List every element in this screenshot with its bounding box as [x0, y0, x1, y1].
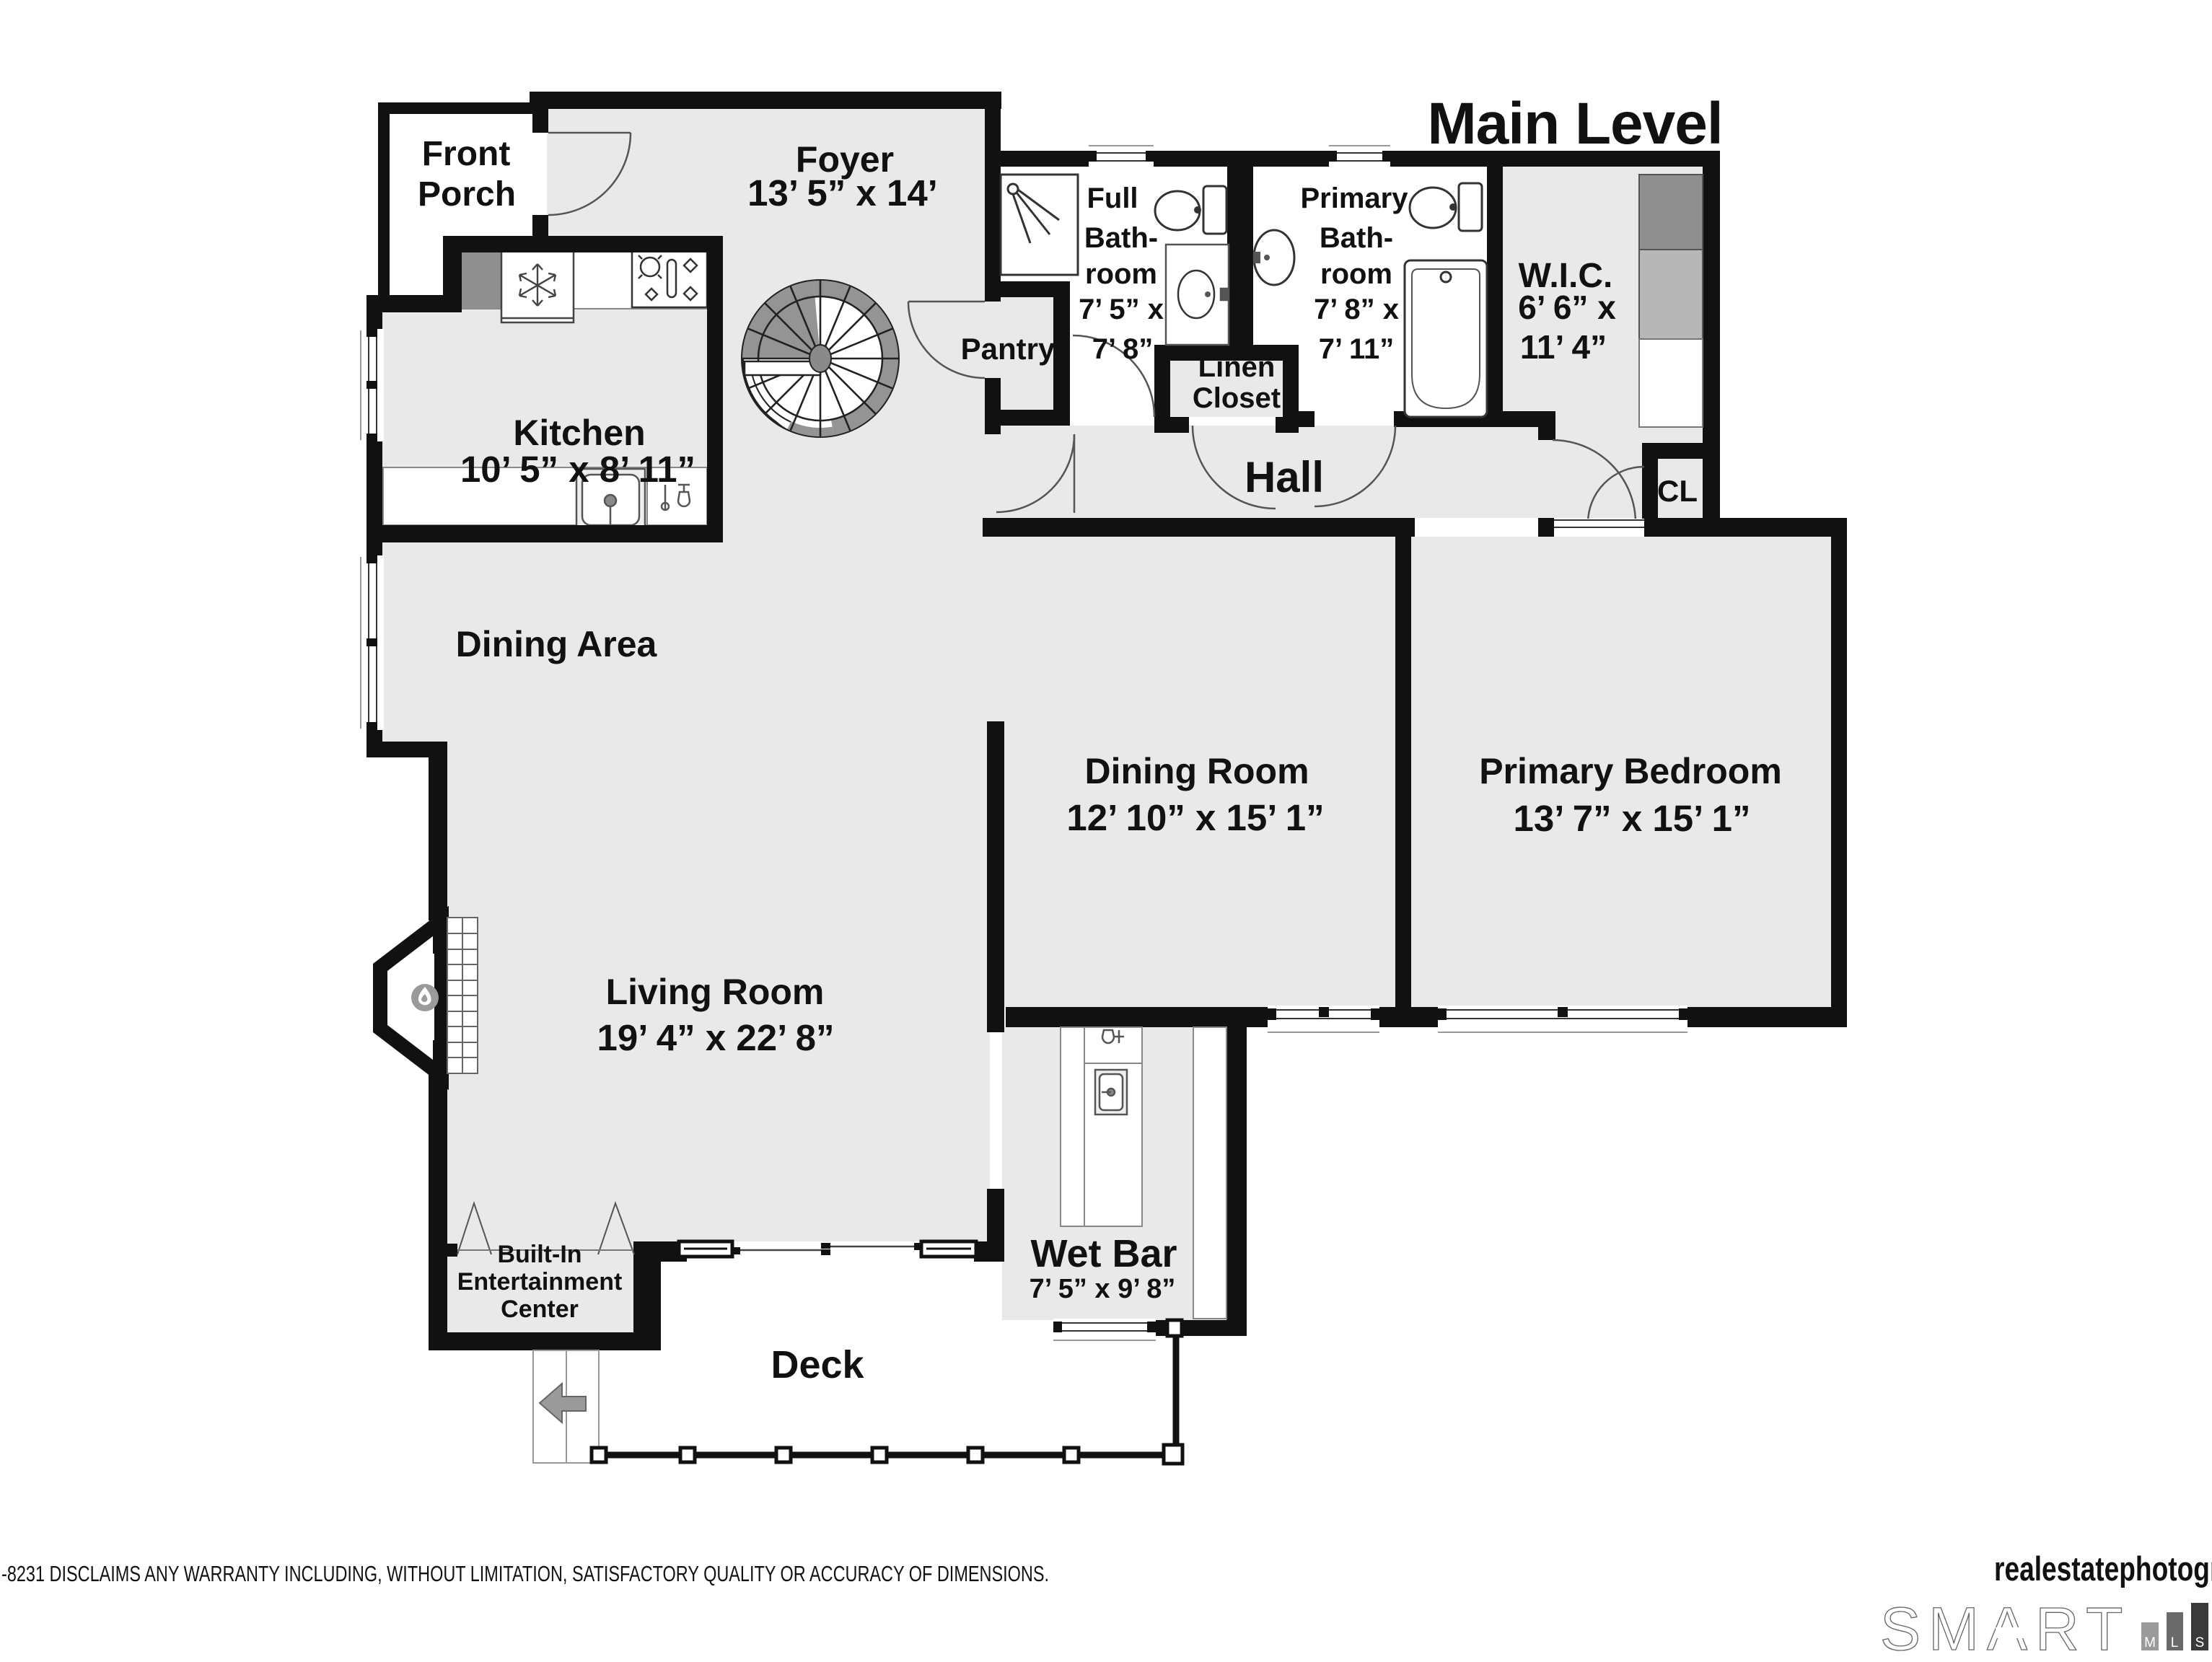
svg-text:M: M: [2144, 1635, 2156, 1650]
svg-text:S: S: [2195, 1635, 2205, 1650]
svg-text:Porch: Porch: [418, 175, 516, 214]
svg-text:Living Room: Living Room: [606, 972, 825, 1012]
svg-text:room: room: [1320, 258, 1392, 290]
svg-text:realestatephotography: realestatephotography: [1994, 1549, 2212, 1588]
svg-text:13’ 7” x 15’ 1”: 13’ 7” x 15’ 1”: [1514, 798, 1751, 839]
svg-text:Closet: Closet: [1193, 382, 1281, 414]
svg-text:Bath-: Bath-: [1320, 222, 1393, 254]
svg-text:Kitchen: Kitchen: [513, 413, 645, 453]
svg-text:room: room: [1085, 258, 1157, 290]
svg-text:12’ 10” x 15’ 1”: 12’ 10” x 15’ 1”: [1066, 797, 1324, 838]
svg-text:Hall: Hall: [1245, 453, 1324, 501]
svg-text:11’ 4”: 11’ 4”: [1520, 328, 1607, 366]
svg-text:Linen: Linen: [1198, 351, 1276, 383]
svg-text:Full: Full: [1087, 183, 1138, 214]
svg-text:Dining Room: Dining Room: [1084, 751, 1309, 791]
svg-text:10’ 5” x 8’ 11”: 10’ 5” x 8’ 11”: [460, 449, 695, 490]
svg-text:7’ 8”: 7’ 8”: [1092, 333, 1154, 365]
svg-text:Deck: Deck: [771, 1343, 864, 1386]
svg-text:Dining Area: Dining Area: [456, 624, 658, 664]
svg-text:Built-In: Built-In: [497, 1241, 581, 1268]
svg-text:7’ 11”: 7’ 11”: [1319, 333, 1395, 365]
svg-text:Bath-: Bath-: [1084, 222, 1158, 254]
svg-text:6’ 6” x: 6’ 6” x: [1518, 289, 1616, 326]
svg-text:7’ 5” x: 7’ 5” x: [1079, 294, 1164, 325]
svg-text:Center: Center: [501, 1296, 579, 1323]
svg-text:19’ 4” x 22’ 8”: 19’ 4” x 22’ 8”: [597, 1017, 835, 1058]
svg-text:7’ 8” x: 7’ 8” x: [1314, 294, 1399, 325]
svg-text:Front: Front: [422, 135, 511, 173]
svg-text:CL: CL: [1657, 474, 1698, 508]
svg-text:7’ 5” x 9’ 8”: 7’ 5” x 9’ 8”: [1030, 1274, 1176, 1304]
svg-text:Main Level: Main Level: [1427, 91, 1722, 157]
svg-text:-8231 DISCLAIMS ANY WARRANTY I: -8231 DISCLAIMS ANY WARRANTY INCLUDING, …: [1, 1561, 1049, 1586]
svg-text:Primary: Primary: [1301, 183, 1409, 214]
svg-text:Pantry: Pantry: [961, 332, 1055, 366]
svg-text:Entertainment: Entertainment: [457, 1268, 623, 1296]
svg-text:Primary Bedroom: Primary Bedroom: [1479, 751, 1782, 791]
svg-text:13’ 5” x 14’: 13’ 5” x 14’: [747, 172, 938, 214]
svg-text:Wet Bar: Wet Bar: [1030, 1232, 1177, 1275]
svg-text:L: L: [2171, 1635, 2179, 1650]
